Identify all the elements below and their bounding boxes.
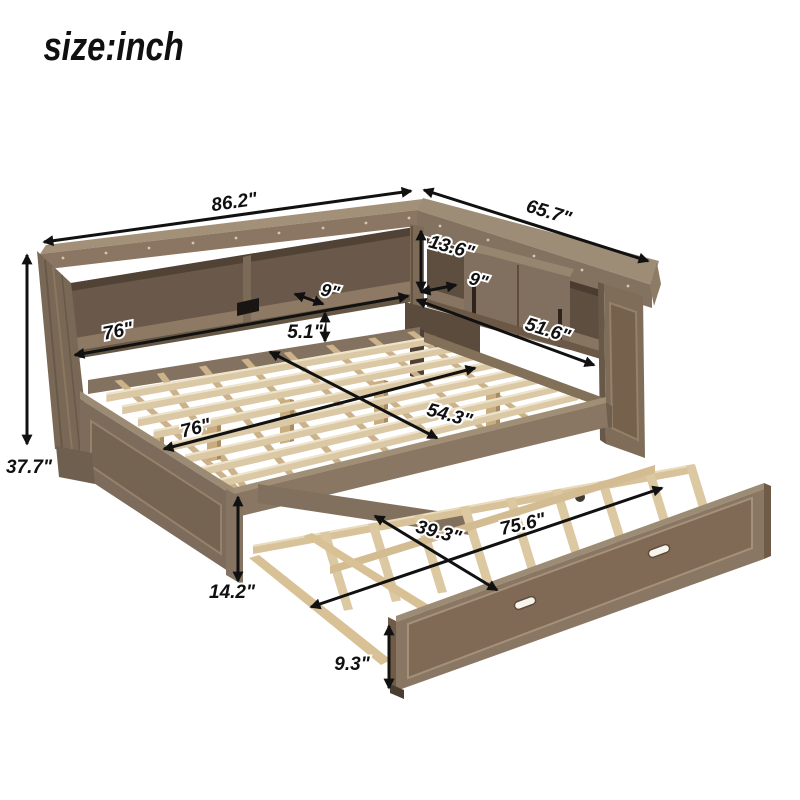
svg-text:14.2": 14.2" [209,582,256,603]
svg-text:5.1": 5.1" [287,322,323,343]
svg-text:37.7": 37.7" [6,457,53,478]
svg-text:size:inch: size:inch [43,24,183,69]
svg-text:9.3": 9.3" [334,654,370,675]
